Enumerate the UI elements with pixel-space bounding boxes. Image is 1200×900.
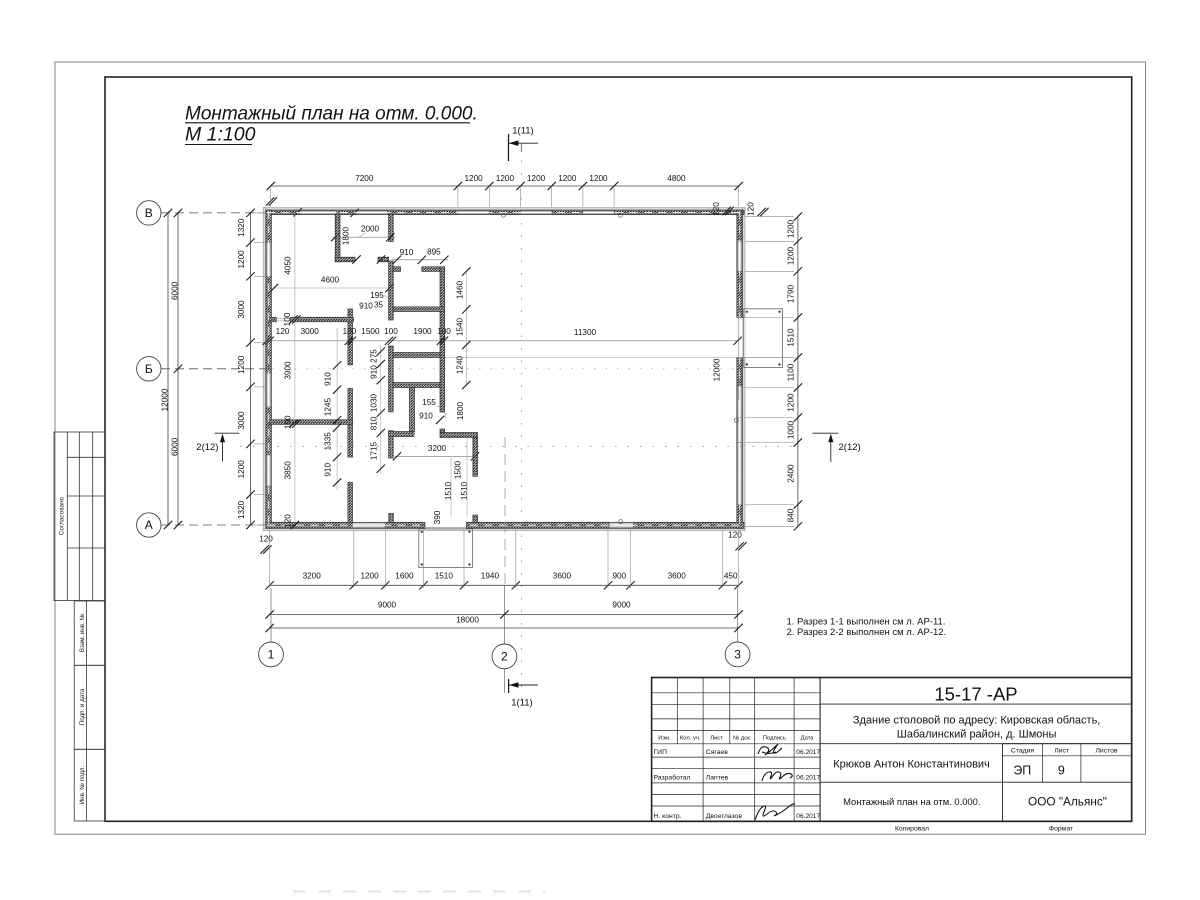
svg-text:1500: 1500 — [361, 327, 380, 336]
svg-text:810: 810 — [369, 416, 378, 430]
svg-text:12000: 12000 — [161, 388, 170, 411]
svg-text:195: 195 — [370, 291, 384, 300]
svg-text:895: 895 — [427, 248, 441, 257]
svg-text:1. Разрез 1-1 выполнен см л. А: 1. Разрез 1-1 выполнен см л. АР-11. — [787, 617, 946, 628]
svg-text:В: В — [145, 206, 153, 220]
svg-text:06.2017: 06.2017 — [796, 749, 820, 756]
svg-text:ООО "Альянс": ООО "Альянс" — [1028, 795, 1107, 809]
svg-text:3600: 3600 — [668, 572, 687, 581]
svg-text:1200: 1200 — [589, 174, 608, 183]
svg-text:1715: 1715 — [369, 441, 378, 460]
svg-text:100: 100 — [283, 312, 292, 326]
svg-text:3000: 3000 — [301, 327, 320, 336]
svg-text:1510: 1510 — [435, 572, 454, 581]
svg-text:35: 35 — [374, 301, 384, 310]
svg-text:Изм.: Изм. — [658, 736, 671, 742]
svg-text:1800: 1800 — [456, 401, 465, 420]
svg-text:Сягаев: Сягаев — [706, 749, 728, 756]
svg-text:1335: 1335 — [323, 432, 332, 451]
svg-text:1(11): 1(11) — [511, 697, 532, 708]
svg-text:2: 2 — [501, 650, 508, 664]
svg-text:910: 910 — [369, 365, 378, 379]
svg-text:1510: 1510 — [444, 481, 453, 500]
svg-text:4050: 4050 — [284, 256, 293, 275]
svg-text:1200: 1200 — [237, 250, 246, 269]
svg-text:1200: 1200 — [464, 174, 483, 183]
svg-text:390: 390 — [433, 510, 442, 524]
svg-text:1500: 1500 — [454, 460, 463, 479]
svg-text:Инв. № подл.: Инв. № подл. — [79, 765, 86, 804]
svg-text:1200: 1200 — [787, 246, 796, 265]
svg-text:9000: 9000 — [612, 601, 631, 610]
svg-text:3: 3 — [734, 648, 741, 662]
svg-text:100: 100 — [343, 327, 357, 336]
svg-text:Копировал: Копировал — [895, 826, 929, 833]
svg-text:9: 9 — [1058, 764, 1065, 778]
svg-text:120: 120 — [728, 531, 742, 540]
svg-text:Лист: Лист — [710, 736, 723, 742]
svg-text:А: А — [145, 518, 153, 532]
svg-text:Согласовано: Согласовано — [59, 496, 66, 535]
svg-text:3850: 3850 — [284, 461, 293, 480]
svg-text:06.2017: 06.2017 — [796, 775, 820, 782]
svg-text:910: 910 — [323, 463, 332, 477]
svg-text:М 1:100: М 1:100 — [185, 124, 256, 146]
svg-text:910: 910 — [400, 248, 414, 257]
svg-text:3000: 3000 — [237, 411, 246, 430]
svg-text:2(12): 2(12) — [196, 442, 218, 453]
svg-text:910: 910 — [419, 412, 433, 421]
svg-text:4600: 4600 — [321, 275, 340, 284]
svg-text:ГИП: ГИП — [654, 749, 668, 756]
svg-text:11300: 11300 — [574, 328, 597, 337]
svg-text:Стадия: Стадия — [1011, 747, 1034, 754]
svg-text:1000: 1000 — [787, 420, 796, 439]
svg-text:1200: 1200 — [558, 174, 577, 183]
svg-text:1510: 1510 — [787, 328, 796, 347]
svg-text:2. Разрез 2-2 выполнен см л. А: 2. Разрез 2-2 выполнен см л. АР-12. — [787, 627, 947, 638]
svg-text:3200: 3200 — [303, 572, 322, 581]
svg-text:ЭП: ЭП — [1013, 764, 1031, 778]
svg-text:840: 840 — [787, 508, 796, 522]
svg-text:9000: 9000 — [378, 601, 397, 610]
svg-text:1200: 1200 — [787, 393, 796, 412]
svg-text:120: 120 — [284, 514, 293, 528]
svg-text:Формат: Формат — [1049, 826, 1073, 833]
svg-text:1200: 1200 — [787, 219, 796, 238]
svg-text:155: 155 — [422, 398, 436, 407]
svg-text:100: 100 — [437, 327, 451, 336]
svg-text:Дата: Дата — [801, 736, 815, 742]
svg-text:Листов: Листов — [1095, 747, 1117, 754]
svg-text:Кол. уч.: Кол. уч. — [680, 736, 701, 742]
svg-text:Лаптев: Лаптев — [706, 775, 729, 782]
svg-text:Монтажный план на отм. 0.000.: Монтажный план на отм. 0.000. — [843, 796, 980, 807]
svg-text:120: 120 — [259, 535, 273, 544]
svg-text:100: 100 — [384, 327, 398, 336]
svg-text:Монтажный план на отм. 0.000.: Монтажный план на отм. 0.000. — [185, 103, 478, 124]
svg-text:15-17 -АР: 15-17 -АР — [934, 684, 1017, 705]
svg-text:1200: 1200 — [237, 460, 246, 479]
svg-text:120: 120 — [276, 327, 290, 336]
svg-text:1240: 1240 — [456, 355, 465, 374]
svg-text:18000: 18000 — [456, 616, 479, 625]
svg-text:Б: Б — [145, 362, 153, 376]
svg-text:№ док.: № док. — [733, 736, 752, 742]
svg-text:Подпись: Подпись — [763, 736, 786, 742]
svg-text:2000: 2000 — [361, 225, 380, 234]
svg-text:450: 450 — [724, 572, 738, 581]
svg-text:1030: 1030 — [369, 393, 378, 412]
svg-text:900: 900 — [612, 572, 626, 581]
svg-text:4800: 4800 — [667, 174, 686, 183]
svg-text:1200: 1200 — [527, 174, 546, 183]
svg-text:1800: 1800 — [341, 226, 350, 245]
svg-text:910: 910 — [323, 372, 332, 386]
svg-text:1320: 1320 — [237, 500, 246, 519]
svg-text:3200: 3200 — [428, 444, 447, 453]
svg-text:Шабалинский район, д. Шмоны: Шабалинский район, д. Шмоны — [897, 729, 1057, 741]
svg-text:1540: 1540 — [456, 317, 465, 336]
svg-text:1900: 1900 — [413, 327, 432, 336]
svg-text:1200: 1200 — [237, 355, 246, 374]
svg-text:120: 120 — [712, 202, 721, 216]
svg-text:1(11): 1(11) — [512, 125, 533, 136]
svg-text:12000: 12000 — [713, 358, 722, 381]
svg-text:100: 100 — [284, 415, 293, 429]
svg-text:120: 120 — [747, 202, 756, 216]
svg-text:Здание столовой по адресу: Кир: Здание столовой по адресу: Кировская обл… — [853, 714, 1101, 726]
svg-text:Н. контр.: Н. контр. — [654, 813, 682, 820]
svg-text:Двоеглазов: Двоеглазов — [706, 813, 743, 820]
svg-text:1: 1 — [268, 648, 275, 662]
svg-text:3600: 3600 — [553, 572, 572, 581]
svg-text:1200: 1200 — [496, 174, 515, 183]
svg-text:910: 910 — [359, 302, 373, 311]
svg-text:1940: 1940 — [481, 572, 500, 581]
svg-text:2400: 2400 — [787, 464, 796, 483]
svg-text:1510: 1510 — [460, 481, 469, 500]
svg-text:6000: 6000 — [170, 437, 179, 456]
svg-text:1600: 1600 — [395, 572, 414, 581]
svg-text:Подп. и дата: Подп. и дата — [79, 688, 86, 725]
svg-text:06.2017: 06.2017 — [796, 813, 820, 820]
svg-text:3900: 3900 — [284, 361, 293, 380]
svg-text:Крюков Антон Константинович: Крюков Антон Константинович — [833, 759, 990, 771]
svg-text:1100: 1100 — [787, 363, 796, 381]
svg-text:1200: 1200 — [360, 572, 379, 581]
svg-text:6000: 6000 — [170, 281, 179, 300]
svg-text:1460: 1460 — [456, 280, 465, 299]
svg-text:2(12): 2(12) — [839, 442, 861, 453]
svg-text:Взам. инв. №: Взам. инв. № — [79, 613, 86, 652]
svg-text:1245: 1245 — [323, 397, 332, 416]
svg-text:1790: 1790 — [787, 284, 796, 303]
svg-text:275: 275 — [369, 349, 378, 363]
svg-text:Лист: Лист — [1054, 747, 1069, 754]
svg-text:3000: 3000 — [237, 300, 246, 319]
svg-text:7200: 7200 — [355, 174, 374, 183]
svg-text:1320: 1320 — [237, 218, 246, 237]
svg-text:Разработал: Разработал — [654, 774, 691, 782]
